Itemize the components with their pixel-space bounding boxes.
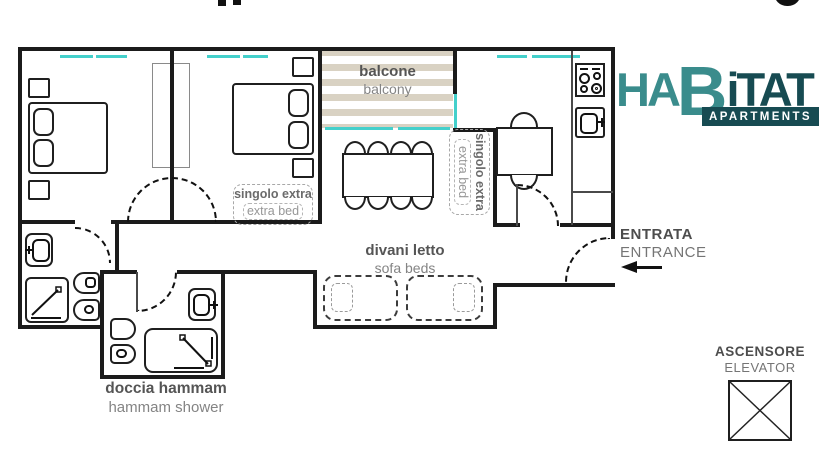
nightstand <box>292 158 314 178</box>
balcony-label-it: balcone <box>322 63 453 81</box>
wall <box>313 325 497 329</box>
nightstand <box>28 180 50 200</box>
kitchen-counter-line <box>571 51 573 225</box>
bidet-icon <box>73 299 100 321</box>
sofa-beds-label-it: divani letto <box>330 242 480 260</box>
balcony-label-en: balcony <box>322 81 453 98</box>
hammam-label: doccia hammam hammam shower <box>86 380 246 417</box>
logo-text-ha: HA <box>616 63 678 116</box>
cropped-title-fragment <box>218 0 226 6</box>
toilet-icon <box>110 318 136 340</box>
window <box>497 55 527 58</box>
chair <box>367 197 389 210</box>
window <box>398 127 450 130</box>
window <box>96 55 127 58</box>
wall <box>18 47 22 329</box>
bidet-icon <box>110 344 136 364</box>
bedroom-extra-bed-it: singolo extra <box>234 187 312 203</box>
balcony-area: balcone balcony <box>322 49 453 128</box>
elevator-x-icon <box>728 380 792 441</box>
wall <box>104 270 137 274</box>
pillow <box>288 89 309 117</box>
door-arc <box>517 184 559 226</box>
wall <box>493 283 497 329</box>
sofa-beds-label: divani letto sofa beds <box>330 242 480 277</box>
toilet-icon <box>73 272 100 294</box>
elevator-label: ASCENSORE ELEVATOR <box>700 344 820 376</box>
sofa-pillow <box>331 283 353 312</box>
entrance-door-arc <box>565 237 610 282</box>
elevator-label-en: ELEVATOR <box>700 360 820 376</box>
wall <box>611 47 615 239</box>
wall <box>493 283 615 287</box>
wall <box>560 223 615 227</box>
kitchen-table <box>496 127 553 176</box>
entrance-label-en: ENTRANCE <box>620 244 730 262</box>
wall <box>318 47 322 224</box>
wall <box>221 270 225 379</box>
kitchen-counter-line <box>571 191 613 193</box>
window <box>207 55 240 58</box>
floor-plan: balcone balcony <box>0 0 840 460</box>
hammam-shower-detail-icon <box>144 328 218 373</box>
window <box>243 55 268 58</box>
sink-icon <box>188 288 216 321</box>
wall <box>100 270 104 379</box>
sink-icon <box>25 233 53 267</box>
bedroom-extra-bed-label: singolo extra extra bed <box>233 184 313 225</box>
chair <box>344 197 366 210</box>
chair <box>411 197 433 210</box>
sofa-beds-label-en: sofa beds <box>330 260 480 277</box>
window <box>60 55 93 58</box>
cropped-title-fragment <box>774 0 801 6</box>
wall <box>177 270 317 274</box>
bedroom-extra-bed-en: extra bed <box>243 203 303 220</box>
pillow <box>33 108 54 136</box>
nightstand <box>292 57 314 77</box>
nightstand <box>28 78 50 98</box>
wall <box>18 325 104 329</box>
wall <box>100 375 225 379</box>
door-arc <box>75 227 111 263</box>
wall <box>313 270 317 329</box>
stove-icon <box>575 63 605 97</box>
shower-detail-icon <box>25 277 69 323</box>
pillow <box>288 121 309 149</box>
cropped-title-fragment <box>233 0 241 5</box>
door-arc <box>127 177 217 222</box>
living-extra-bed-label: singolo extra extra bed <box>446 129 490 217</box>
hammam-label-en: hammam shower <box>86 399 246 417</box>
wall <box>115 220 119 274</box>
wall <box>18 220 75 224</box>
chair <box>510 112 538 127</box>
dining-table <box>342 153 434 198</box>
logo-badge: APARTMENTS <box>702 107 819 126</box>
entrance-arrow-head-icon <box>621 261 637 273</box>
door-leaf <box>516 184 518 226</box>
elevator-label-it: ASCENSORE <box>700 344 820 360</box>
wall <box>453 47 457 94</box>
entrance-arrow-icon <box>636 266 662 269</box>
chair <box>390 197 412 210</box>
sofa-pillow <box>453 283 475 312</box>
hammam-label-it: doccia hammam <box>86 380 246 399</box>
living-extra-bed-it: singolo extra <box>471 130 487 214</box>
window <box>454 92 457 130</box>
sink-icon <box>575 107 605 138</box>
entrance-label: ENTRATA ENTRANCE <box>620 226 730 262</box>
window <box>325 127 393 130</box>
habitat-logo: HABiTAT APARTMENTS <box>616 54 826 134</box>
door-leaf <box>136 272 138 312</box>
door-arc <box>137 272 177 312</box>
entrance-label-it: ENTRATA <box>620 226 730 244</box>
pillow <box>33 139 54 167</box>
wall <box>18 47 615 51</box>
living-extra-bed-en: extra bed <box>454 139 471 205</box>
balcony-label: balcone balcony <box>322 63 453 98</box>
